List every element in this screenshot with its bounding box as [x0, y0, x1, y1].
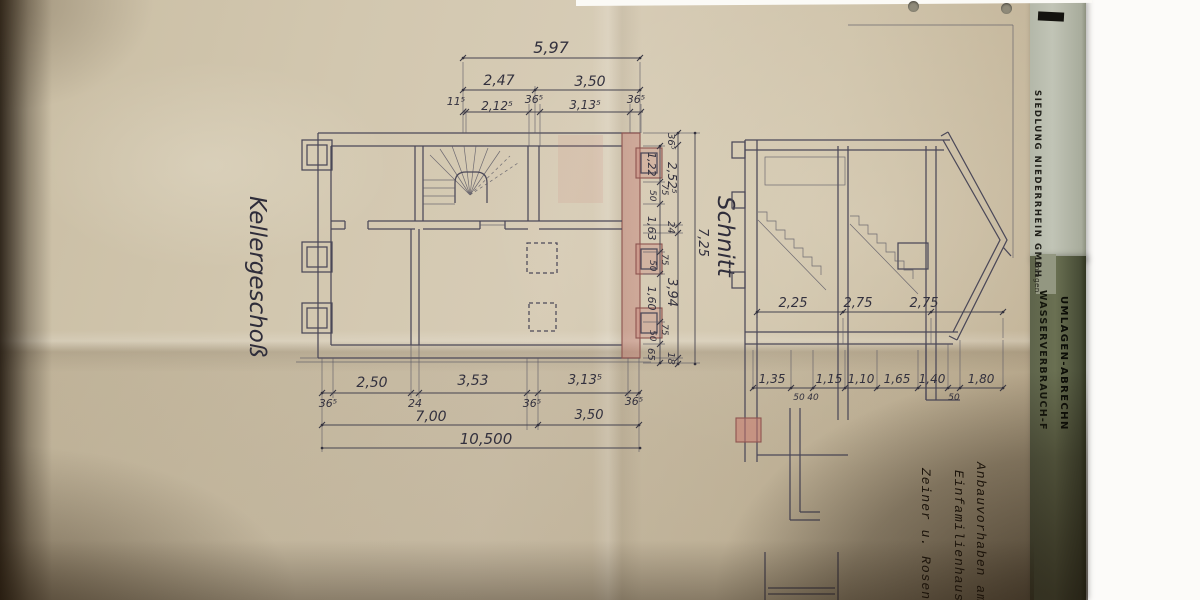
plan-interior-wall-h — [331, 221, 622, 229]
dim-right: 3,94 — [664, 278, 679, 307]
dim-right: 65 — [645, 348, 656, 361]
section-drawing — [732, 25, 1013, 600]
dim-story: 2,25 — [779, 296, 808, 311]
dim-section: 1,10 — [848, 372, 875, 386]
dim-section: 1,65 — [884, 372, 911, 386]
dim-right: 75 — [659, 324, 669, 336]
dim-bottom: 3,50 — [575, 408, 604, 423]
dim-bottom: 36⁵ — [523, 397, 541, 410]
project-line-2: Einfamilienhaus — [951, 470, 966, 600]
dim-story: 2,75 — [910, 296, 939, 311]
section-window — [898, 243, 928, 269]
dim-bottom: 36⁵ — [625, 395, 643, 408]
label-bar — [1038, 11, 1064, 21]
dim-right-total: 7,25 — [695, 228, 710, 257]
dim-right: 1,63 — [645, 216, 658, 241]
dim-section: 1,80 — [968, 372, 995, 386]
dim-bottom: 7,00 — [415, 409, 446, 425]
folder-tab-label: Umlagen — [1033, 258, 1041, 293]
sheet-edge-line — [848, 25, 1013, 258]
plan-stair-room-walls — [415, 146, 539, 221]
dim-top: 2,47 — [483, 73, 514, 89]
dim-top: 11⁵ — [447, 95, 465, 108]
punch-hole — [1001, 3, 1012, 14]
plan-chimney-dashed — [527, 243, 557, 331]
dim-section: 50 — [948, 393, 960, 403]
photo-of-architectural-drawing: 5,97 2,47 3,50 11⁵ 2,12⁵ 36⁵ 3,13⁵ 36⁵ 3… — [0, 0, 1200, 600]
folder-front-label: WASSERVERBRAUCH-F — [1037, 290, 1048, 431]
dim-top: 3,13⁵ — [569, 98, 601, 112]
plan-title: Kellergeschoß — [244, 196, 270, 357]
plan-left-window-boxes — [302, 140, 332, 333]
dim-right: 24 — [665, 221, 676, 234]
client-name: Zeiner u. Rosenberg — [918, 468, 933, 600]
dim-section: 40 — [807, 393, 819, 403]
dim-right: 36⁵ — [665, 133, 676, 150]
section-stair-flight-2 — [850, 216, 918, 294]
dim-right: 75 — [659, 254, 669, 266]
section-stair-flight-1 — [758, 212, 826, 290]
plan-interior-wall-v — [411, 229, 419, 345]
dim-total-top: 5,97 — [533, 38, 569, 57]
detail-cutoff-bottom — [765, 552, 838, 600]
section-landing — [765, 157, 845, 185]
dim-bottom: 36⁵ — [319, 397, 337, 410]
dim-top: 3,50 — [574, 74, 605, 90]
company-label: SIEDLUNG NIEDERRHEIN GMBH — [1032, 90, 1042, 278]
folder-spine-label: UMLAGEN-ABRECHN — [1058, 296, 1069, 431]
dim-right: 50 — [647, 260, 657, 272]
dim-bottom: 2,50 — [356, 375, 387, 391]
dim-top: 2,12⁵ — [481, 99, 513, 113]
dim-right: 18 — [665, 352, 676, 365]
red-smudge — [558, 135, 603, 203]
dim-total-bottom: 10,500 — [460, 430, 513, 448]
dim-bottom: 3,53 — [457, 373, 488, 389]
section-new-part-red — [736, 418, 761, 442]
dim-right: 2,52⁵ — [665, 162, 679, 194]
dim-right: 1,60 — [645, 286, 658, 311]
dim-story: 2,75 — [844, 296, 873, 311]
plan-stair — [423, 146, 518, 204]
project-line-1: Anbauvorhaben am — [973, 462, 988, 600]
section-walls — [745, 140, 936, 462]
dim-section: 50 — [793, 393, 805, 403]
dim-right: 1,22 — [645, 152, 658, 177]
dim-section: 1,15 — [816, 372, 843, 386]
dim-right: 50 — [647, 330, 657, 342]
punch-hole — [908, 1, 919, 12]
dim-section: 1,35 — [759, 372, 786, 386]
dim-top: 36⁵ — [627, 93, 645, 106]
floor-plan-drawing — [296, 133, 662, 362]
dim-top: 36⁵ — [525, 93, 543, 106]
drawing-linework: 5,97 2,47 3,50 11⁵ 2,12⁵ 36⁵ 3,13⁵ 36⁵ 3… — [0, 0, 1200, 600]
dim-right: 50 — [647, 190, 657, 202]
dim-section: 1,40 — [919, 372, 946, 386]
dim-bottom: 3,13⁵ — [568, 373, 602, 388]
section-roof — [941, 132, 1011, 340]
